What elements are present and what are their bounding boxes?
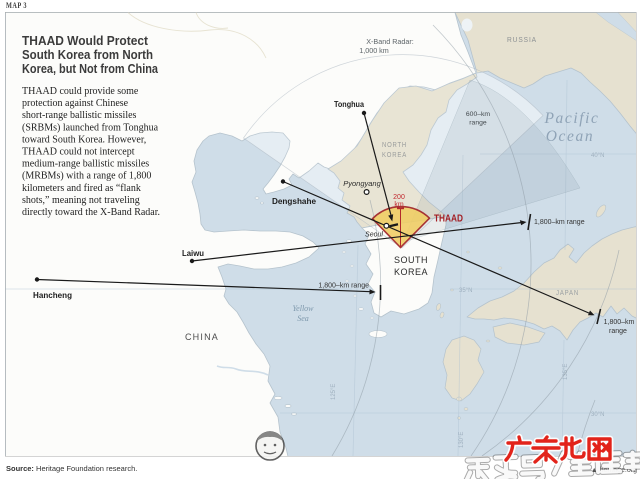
svg-text:Pyongyang: Pyongyang [343,179,381,188]
svg-text:short-range ballistic missiles: short-range ballistic missiles [22,110,137,121]
svg-text:range: range [469,120,487,127]
svg-text:40°N: 40°N [591,153,604,159]
svg-text:200: 200 [393,194,405,201]
svg-text:THAAD Would Protect: THAAD Would Protect [22,33,149,48]
svg-text:km: km [394,202,404,209]
svg-text:THAAD could not intercept: THAAD could not intercept [22,147,135,158]
svg-text:1,800–km: 1,800–km [604,319,635,326]
svg-text:Yellow: Yellow [292,304,314,313]
svg-text:1,800–km range: 1,800–km range [534,219,585,226]
svg-text:(MRBMs) with a range of 1,800: (MRBMs) with a range of 1,800 [22,171,151,182]
svg-text:30°N: 30°N [591,412,604,418]
svg-text:130°E: 130°E [459,432,465,448]
svg-text:Laiwu: Laiwu [182,249,204,258]
svg-text:medium-range ballistic missile: medium-range ballistic missiles [22,159,149,170]
svg-text:South Korea from North: South Korea from North [22,47,153,62]
svg-text:Dengshahe: Dengshahe [272,197,317,206]
svg-text:Seoul: Seoul [365,232,383,239]
svg-text:(SRBMs) launched from Tonghua: (SRBMs) launched from Tonghua [22,122,159,133]
svg-text:MAP 3: MAP 3 [6,1,27,10]
svg-text:1,800–km range: 1,800–km range [318,283,369,290]
svg-text:Sea: Sea [297,314,309,323]
svg-text:kilometers and fired as “flank: kilometers and fired as “flank [22,183,141,194]
svg-text:range: range [609,328,627,335]
svg-text:protection against Chinese: protection against Chinese [22,98,129,109]
svg-text:THAAD: THAAD [434,214,463,225]
svg-text:KOREA: KOREA [394,267,428,277]
svg-text:toward South Korea. However,: toward South Korea. However, [22,134,146,145]
svg-text:X-Band Radar:: X-Band Radar: [366,37,414,46]
svg-text:directly toward the X-Band Rad: directly toward the X-Band Radar. [22,207,160,218]
svg-text:125°E: 125°E [331,384,337,400]
svg-text:RUSSIA: RUSSIA [507,35,537,44]
svg-text:Ocean: Ocean [546,128,594,145]
svg-text:Korea, but Not from China: Korea, but Not from China [22,61,159,76]
svg-text:Hancheng: Hancheng [33,291,72,300]
svg-text:NORTH: NORTH [382,140,407,149]
svg-text:1,000 km: 1,000 km [359,46,389,55]
svg-text:SOUTH: SOUTH [394,255,428,265]
svg-text:600–km: 600–km [466,111,491,118]
svg-text:JAPAN: JAPAN [556,288,579,297]
svg-text:35°N: 35°N [459,288,472,294]
svg-text:KOREA: KOREA [382,150,407,159]
svg-text:CHINA: CHINA [185,332,219,342]
svg-text:Tonghua: Tonghua [334,100,364,109]
svg-text:shots,” meaning not traveling: shots,” meaning not traveling [22,195,140,206]
svg-text:Pacific: Pacific [543,110,599,127]
svg-text:Source: Heritage Foundation re: Source: Heritage Foundation research. [6,464,137,473]
svg-text:THAAD could provide some: THAAD could provide some [22,86,139,97]
